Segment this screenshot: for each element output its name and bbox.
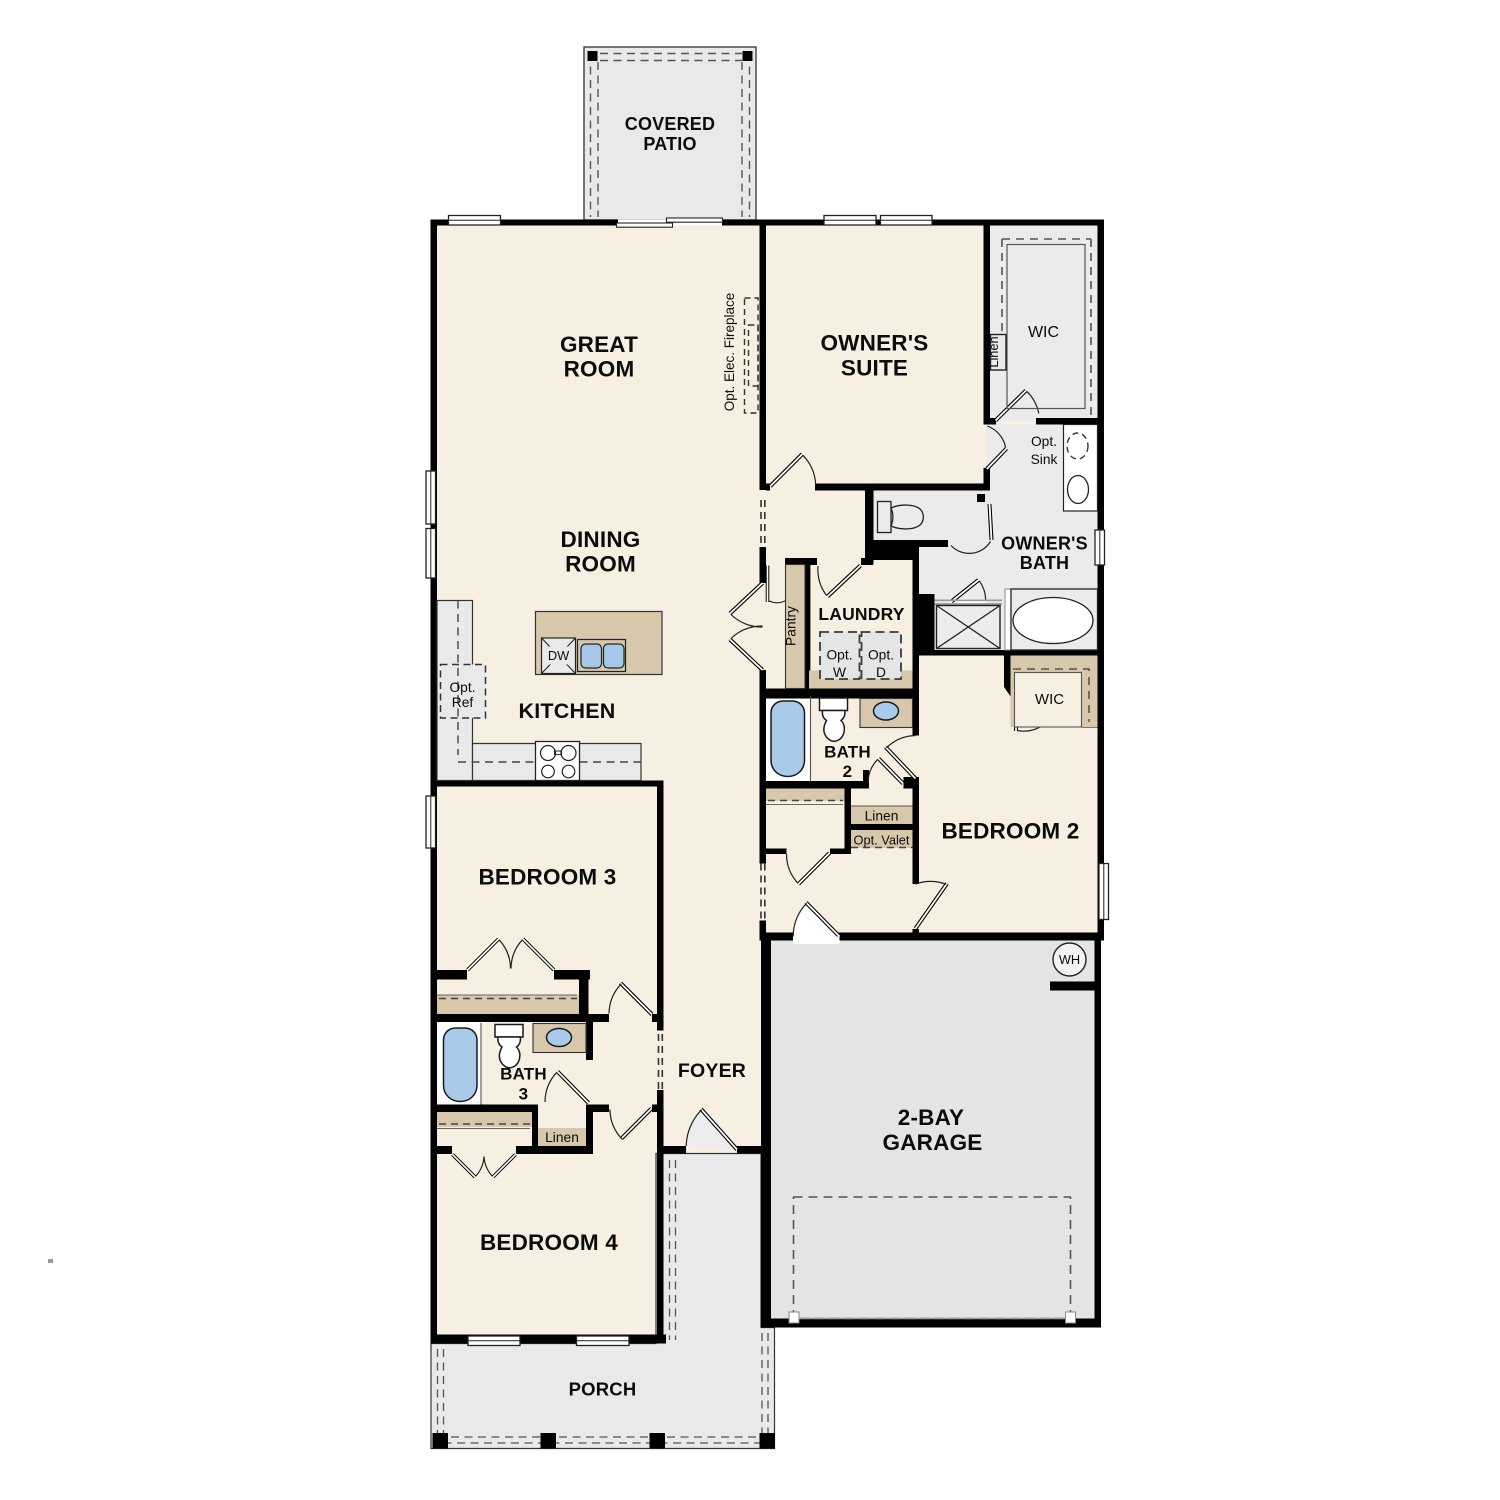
svg-text:OWNER'S: OWNER'S — [820, 331, 928, 356]
svg-text:BEDROOM 3: BEDROOM 3 — [478, 865, 616, 890]
svg-text:COVERED: COVERED — [625, 114, 715, 134]
svg-text:D: D — [876, 665, 886, 680]
svg-text:PORCH: PORCH — [569, 1379, 637, 1400]
svg-text:Opt.: Opt. — [449, 680, 475, 695]
svg-text:KITCHEN: KITCHEN — [519, 699, 616, 723]
svg-text:ROOM: ROOM — [564, 357, 635, 382]
svg-text:WIC: WIC — [1035, 691, 1064, 708]
svg-text:2-BAY: 2-BAY — [898, 1105, 964, 1130]
svg-text:Linen: Linen — [545, 1130, 579, 1145]
svg-text:W: W — [833, 665, 846, 680]
svg-text:Opt.: Opt. — [1031, 434, 1057, 449]
svg-text:Sink: Sink — [1031, 452, 1058, 467]
svg-text:DW: DW — [548, 648, 570, 663]
svg-text:Opt.: Opt. — [826, 648, 852, 663]
svg-text:Ref: Ref — [452, 695, 474, 710]
svg-text:FOYER: FOYER — [678, 1060, 746, 1082]
svg-text:WH: WH — [1059, 952, 1080, 967]
svg-text:Opt.: Opt. — [868, 648, 894, 663]
svg-text:Opt. Elec. Fireplace: Opt. Elec. Fireplace — [722, 293, 737, 412]
svg-text:Linen: Linen — [986, 336, 1001, 367]
svg-text:BEDROOM 2: BEDROOM 2 — [941, 819, 1079, 844]
svg-text:GREAT: GREAT — [560, 332, 638, 357]
svg-text:WIC: WIC — [1028, 324, 1059, 341]
svg-text:Linen: Linen — [865, 809, 899, 824]
svg-text:BATH: BATH — [824, 743, 871, 762]
svg-text:SUITE: SUITE — [841, 356, 908, 381]
svg-text:3: 3 — [519, 1085, 529, 1104]
svg-text:GARAGE: GARAGE — [883, 1130, 983, 1155]
svg-text:BATH: BATH — [500, 1065, 547, 1084]
svg-text:OWNER'S: OWNER'S — [1001, 534, 1088, 554]
svg-text:BEDROOM 4: BEDROOM 4 — [480, 1230, 618, 1255]
svg-text:DINING: DINING — [561, 527, 641, 552]
svg-text:LAUNDRY: LAUNDRY — [818, 604, 904, 624]
svg-text:Opt. Valet: Opt. Valet — [854, 833, 910, 848]
svg-text:Pantry: Pantry — [784, 606, 799, 646]
svg-text:BATH: BATH — [1020, 553, 1069, 573]
svg-text:2: 2 — [843, 762, 853, 781]
svg-text:PATIO: PATIO — [643, 134, 696, 154]
svg-text:ROOM: ROOM — [565, 552, 636, 577]
